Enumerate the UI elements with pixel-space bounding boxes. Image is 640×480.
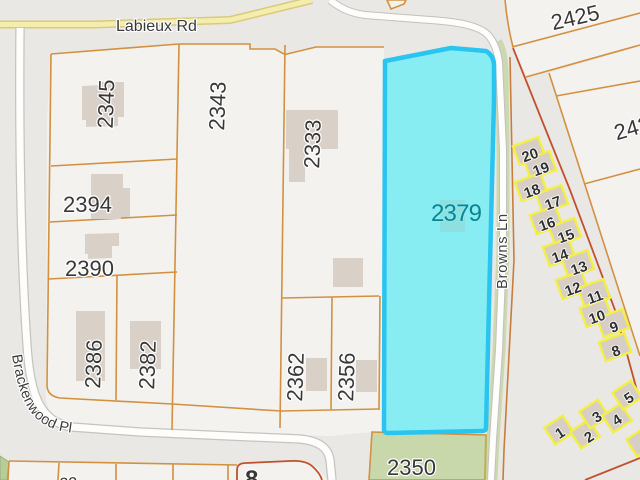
svg-text:23: 23 — [59, 475, 78, 480]
svg-text:2394: 2394 — [63, 192, 112, 217]
svg-text:2333: 2333 — [299, 119, 326, 169]
svg-text:2386: 2386 — [80, 339, 107, 389]
svg-text:2356: 2356 — [333, 352, 360, 402]
svg-text:2345: 2345 — [93, 79, 120, 129]
svg-text:Labieux Rd: Labieux Rd — [116, 18, 197, 35]
svg-text:2379: 2379 — [431, 200, 482, 227]
svg-text:2382: 2382 — [134, 340, 161, 390]
svg-text:8: 8 — [245, 466, 258, 480]
svg-text:2390: 2390 — [65, 256, 114, 281]
svg-text:2350: 2350 — [387, 455, 436, 480]
svg-text:2343: 2343 — [204, 81, 231, 131]
svg-text:2362: 2362 — [282, 352, 309, 402]
svg-text:Browns Ln: Browns Ln — [495, 213, 511, 289]
